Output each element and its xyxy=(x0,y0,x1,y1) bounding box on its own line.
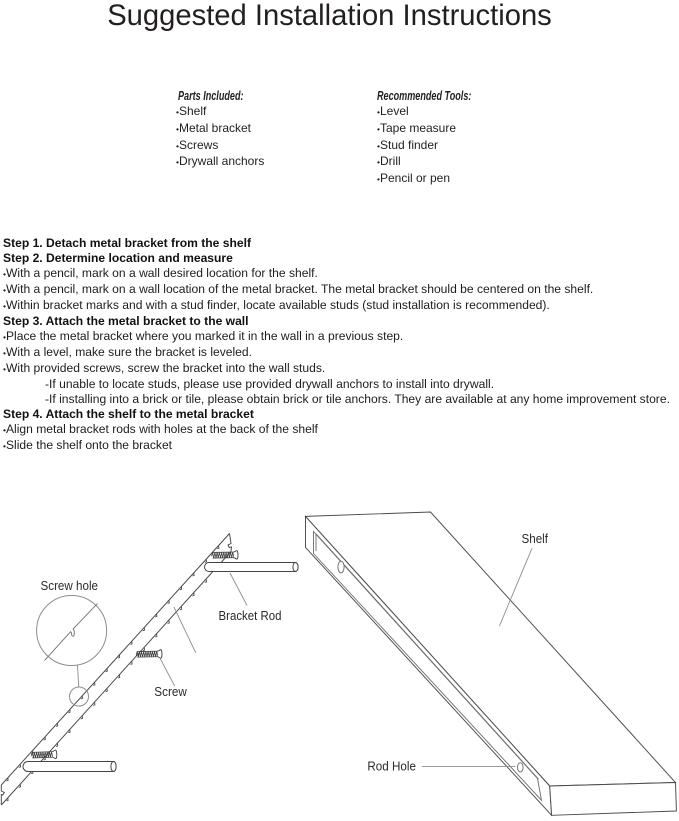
svg-text:Shelf: Shelf xyxy=(522,531,549,546)
svg-text:Screw hole: Screw hole xyxy=(41,578,99,593)
svg-text:Rod Hole: Rod Hole xyxy=(367,759,416,774)
svg-text:Bracket Rod: Bracket Rod xyxy=(219,608,282,623)
svg-text:Screw: Screw xyxy=(154,684,187,699)
